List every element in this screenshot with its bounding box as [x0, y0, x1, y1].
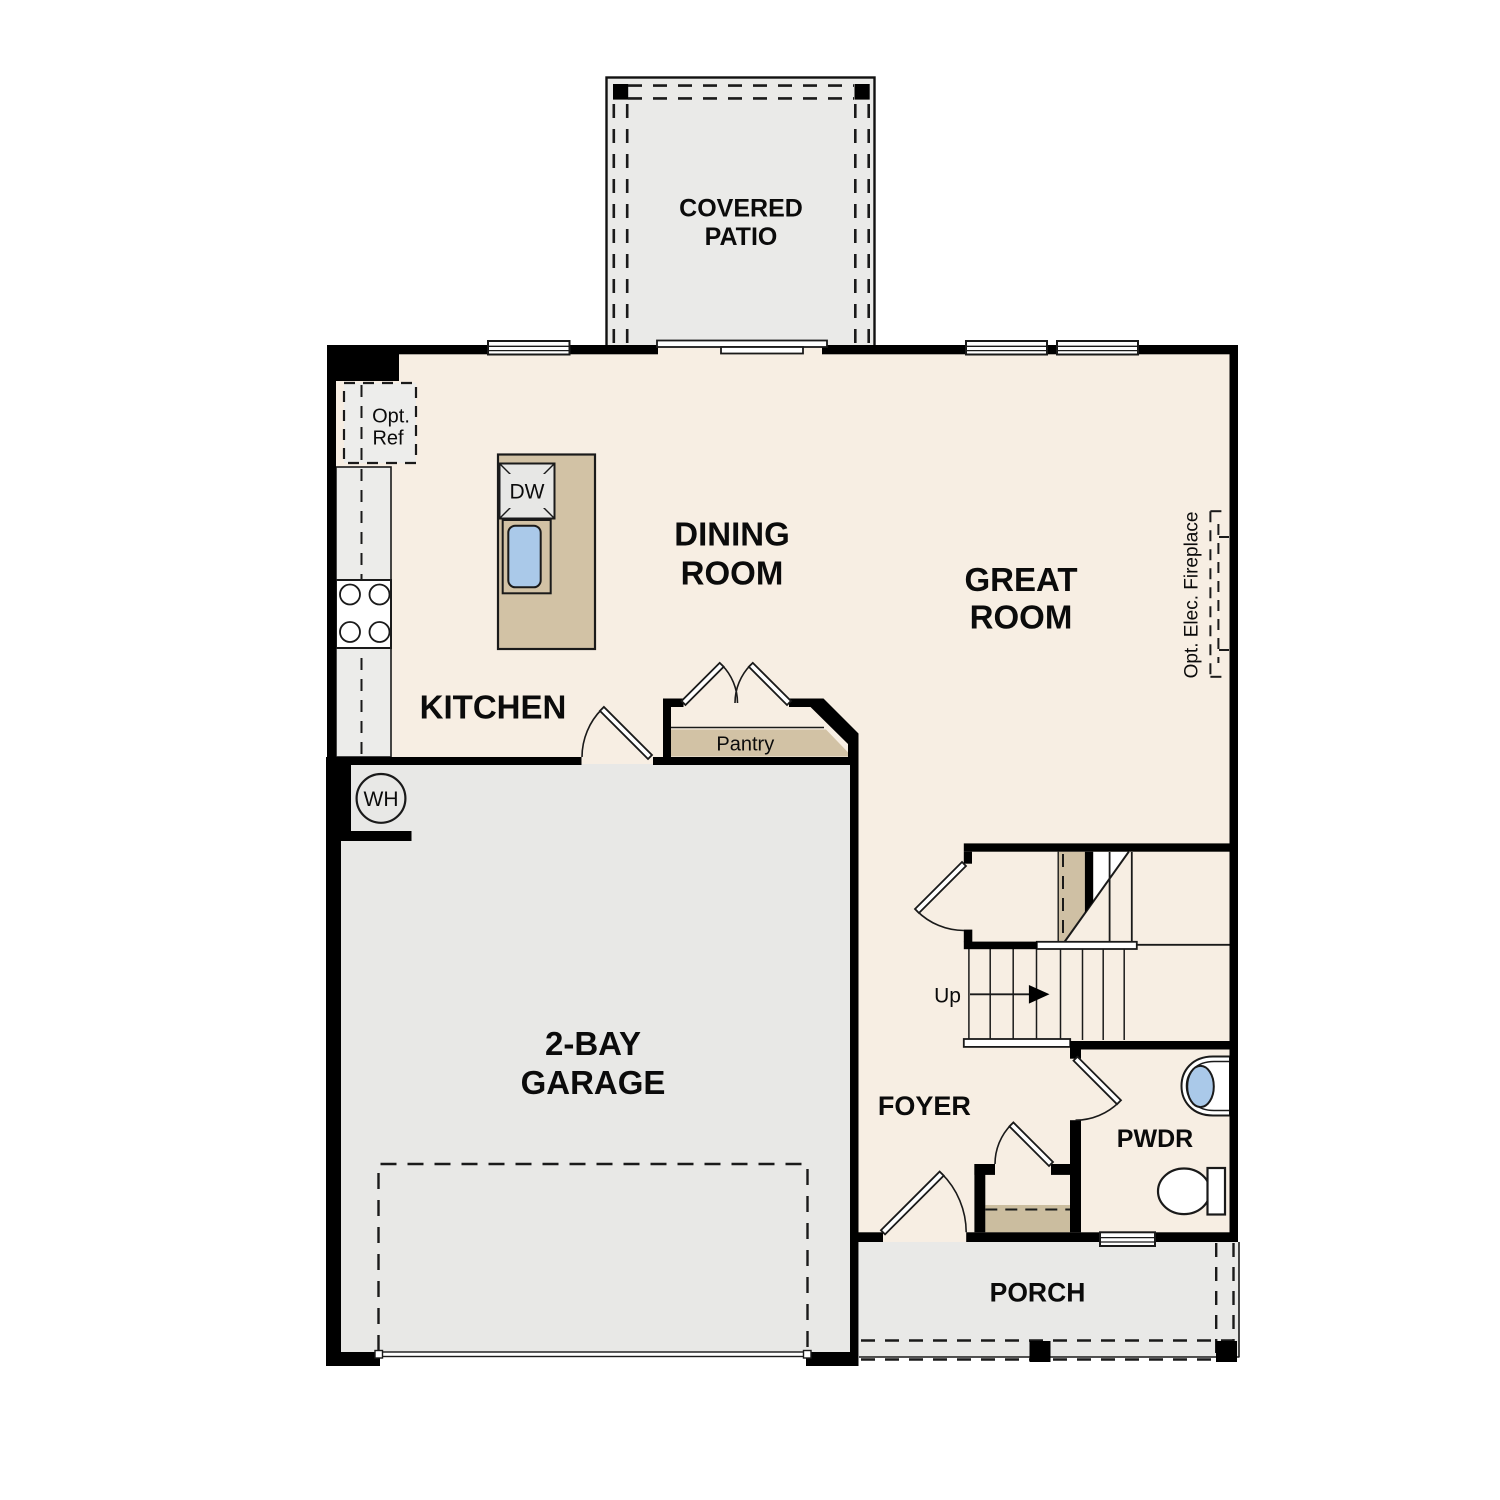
svg-text:PORCH: PORCH [990, 1278, 1086, 1308]
svg-text:DINING: DINING [674, 515, 790, 552]
svg-text:2-BAY: 2-BAY [545, 1025, 641, 1062]
svg-text:ROOM: ROOM [681, 555, 784, 592]
svg-text:Pantry: Pantry [716, 733, 774, 755]
svg-text:FOYER: FOYER [878, 1091, 971, 1121]
svg-text:Up: Up [934, 985, 961, 1008]
svg-text:Opt. Elec. Fireplace: Opt. Elec. Fireplace [1182, 512, 1203, 679]
svg-text:Opt.: Opt. [372, 406, 410, 428]
svg-text:GREAT: GREAT [964, 561, 1077, 598]
svg-text:KITCHEN: KITCHEN [420, 689, 567, 726]
svg-text:COVERED: COVERED [679, 195, 803, 223]
svg-text:ROOM: ROOM [970, 598, 1073, 635]
svg-text:Ref: Ref [372, 428, 404, 450]
svg-text:PATIO: PATIO [705, 223, 778, 251]
svg-text:WH: WH [364, 788, 399, 811]
svg-text:DW: DW [510, 481, 545, 504]
svg-text:GARAGE: GARAGE [521, 1064, 666, 1101]
svg-text:PWDR: PWDR [1117, 1125, 1193, 1153]
